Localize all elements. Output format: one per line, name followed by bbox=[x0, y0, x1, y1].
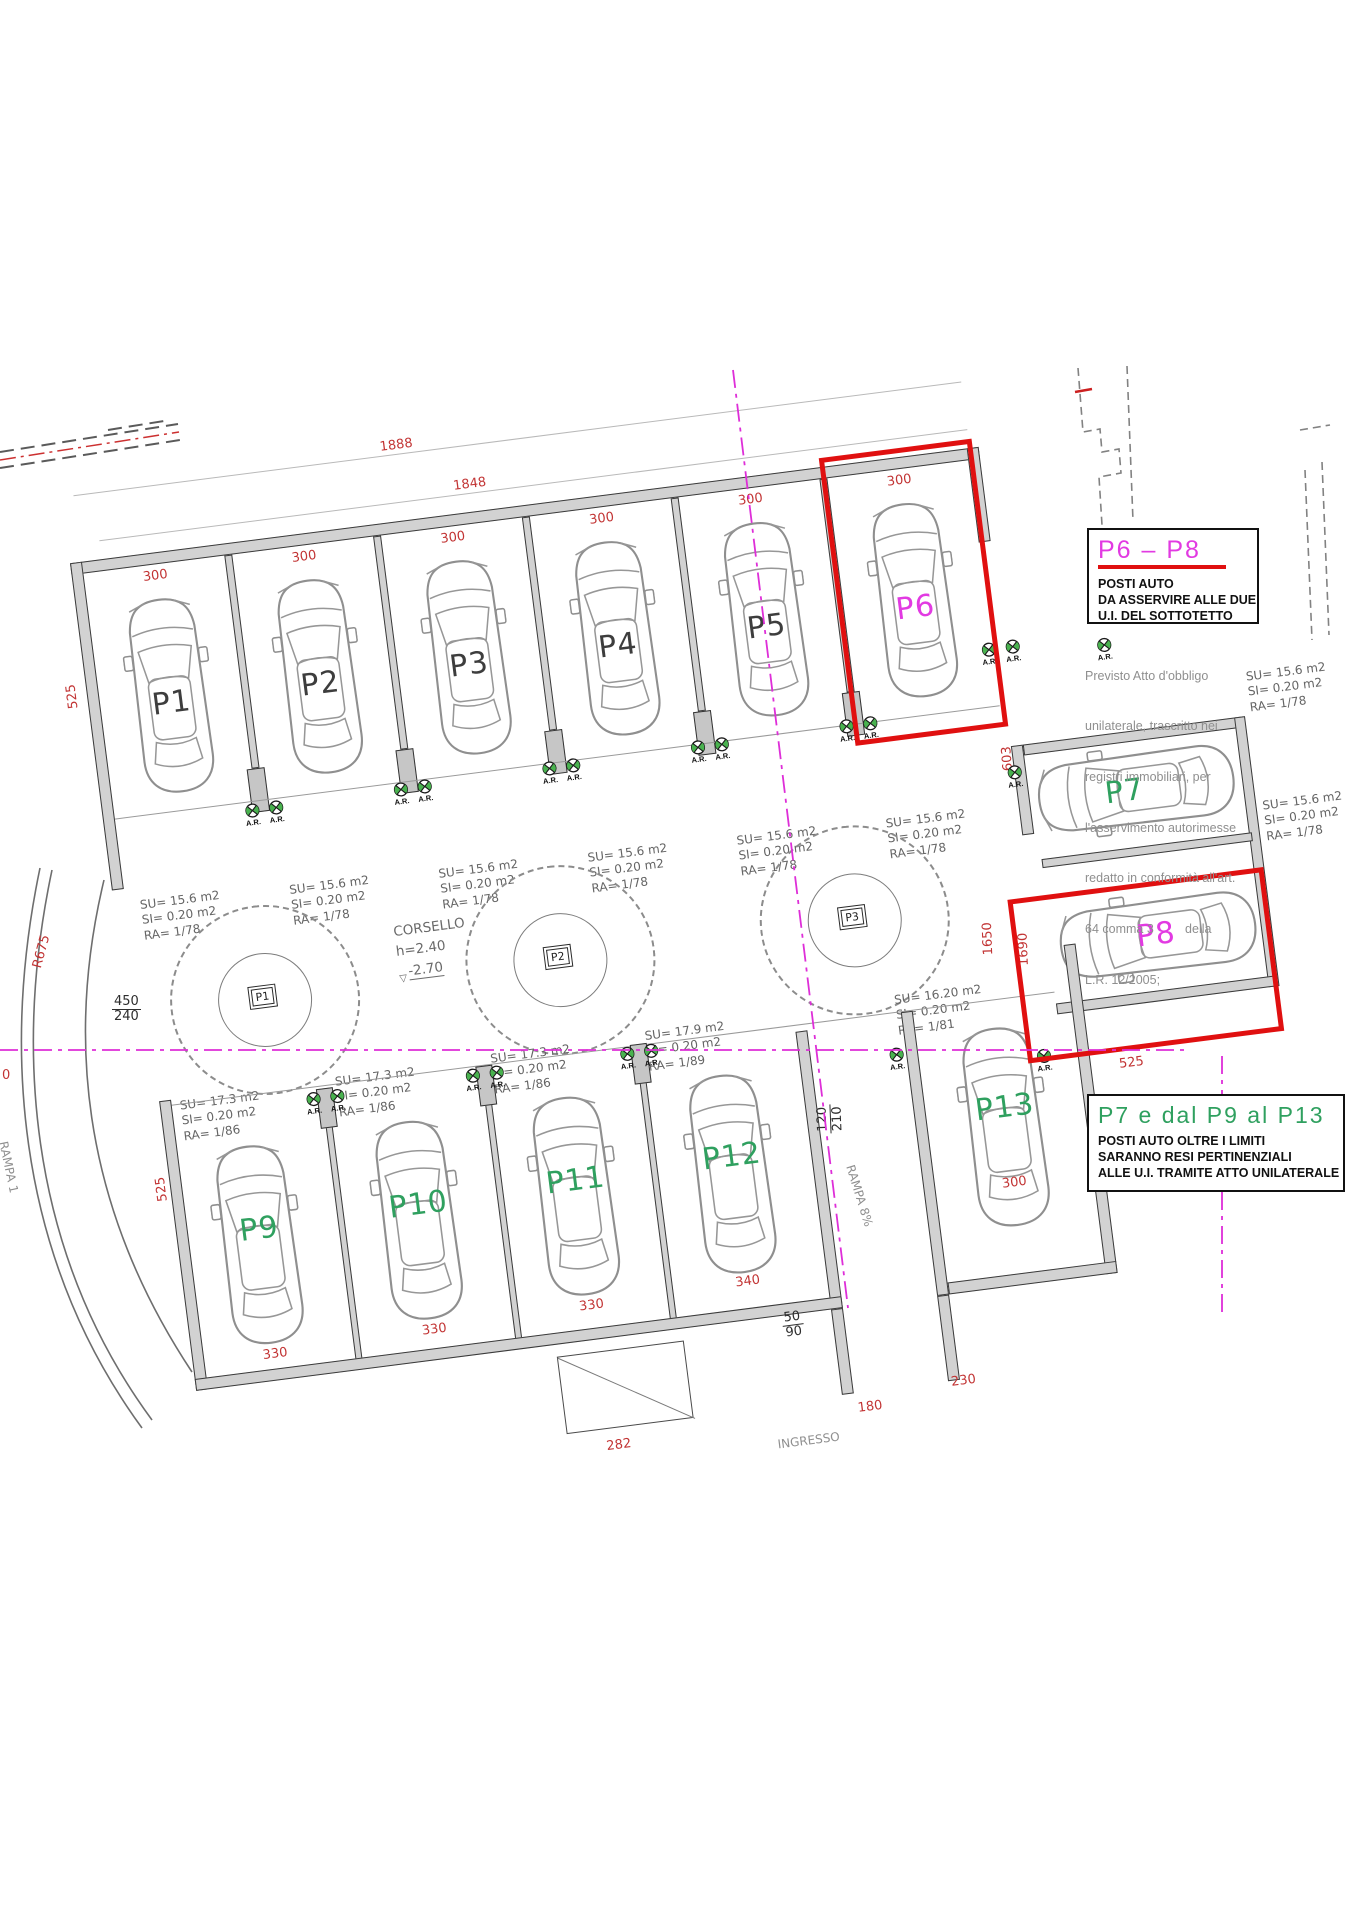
ar-symbol: A.R. bbox=[482, 1064, 511, 1090]
ar-symbol: A.R. bbox=[637, 1042, 666, 1068]
floor-plan-canvas: 1888 1848 525 300 P1 300 P2 300 bbox=[0, 0, 1358, 1920]
ar-symbol: A.R. bbox=[707, 735, 736, 761]
dim-180: 180 bbox=[857, 1398, 884, 1416]
shaft-diagonal bbox=[558, 1358, 696, 1419]
wall-corridor-right bbox=[937, 1294, 960, 1381]
dim-525-left-bottom: 525 bbox=[153, 1176, 171, 1203]
pillar-tag-p1: P1 bbox=[247, 984, 277, 1010]
stair-shaft bbox=[557, 1341, 694, 1435]
ar-symbol: A.R. bbox=[323, 1087, 352, 1113]
dim-120-210: 120210 bbox=[815, 1104, 844, 1134]
corsello-label: CORSELLO h=2.40 ▽-2.70 bbox=[392, 913, 471, 982]
legend-p6-p8: P6 – P8 POSTI AUTO DA ASSERVIRE ALLE DUE… bbox=[1087, 528, 1259, 624]
dim-525-right: 525 bbox=[1118, 1054, 1145, 1072]
ramp-8-label: RAMPA 8% bbox=[843, 1163, 875, 1228]
dim-230: 230 bbox=[950, 1372, 977, 1390]
red-underline bbox=[1098, 565, 1226, 569]
ar-symbol: A.R. bbox=[998, 638, 1027, 664]
ar-symbol: A.R. bbox=[410, 777, 439, 803]
ar-symbol: A.R. bbox=[262, 798, 291, 824]
ar-symbol: A.R. bbox=[882, 1046, 911, 1072]
pillar-tag-p3: P3 bbox=[837, 904, 867, 930]
dim-282: 282 bbox=[606, 1436, 633, 1454]
level-marker-icon: ▽ bbox=[399, 972, 408, 984]
dim-r675: R675 bbox=[30, 933, 53, 970]
legend-title: P6 – P8 bbox=[1098, 537, 1248, 563]
annotation-p8: SU= 15.6 m2SI= 0.20 m2RA= 1/78 bbox=[1258, 757, 1352, 877]
dim-0: 0 bbox=[2, 1068, 10, 1083]
wall-corridor-left bbox=[831, 1308, 854, 1395]
dim-525-left-top: 525 bbox=[63, 683, 81, 710]
ramp-1-label: RAMPA 1 bbox=[0, 1140, 21, 1194]
obligation-note: Previsto Atto d'obbligo unilaterale, tra… bbox=[1085, 634, 1245, 1022]
dim-1650: 1650 bbox=[980, 922, 996, 956]
dim-450-240: 450240 bbox=[112, 995, 141, 1023]
ingresso-label: INGRESSO bbox=[777, 1430, 841, 1452]
dim-50-90: 5090 bbox=[781, 1309, 805, 1340]
ar-symbol: A.R. bbox=[1000, 763, 1029, 789]
annotation-p7: SU= 15.6 m2SI= 0.20 m2RA= 1/78 bbox=[1241, 628, 1335, 748]
pillar-tag-p2: P2 bbox=[543, 944, 573, 970]
legend-title: P7 e dal P9 al P13 bbox=[1098, 1103, 1334, 1127]
ar-symbol: A.R. bbox=[559, 756, 588, 782]
legend-p7-p9-p13: P7 e dal P9 al P13 POSTI AUTO OLTRE I LI… bbox=[1087, 1094, 1345, 1192]
